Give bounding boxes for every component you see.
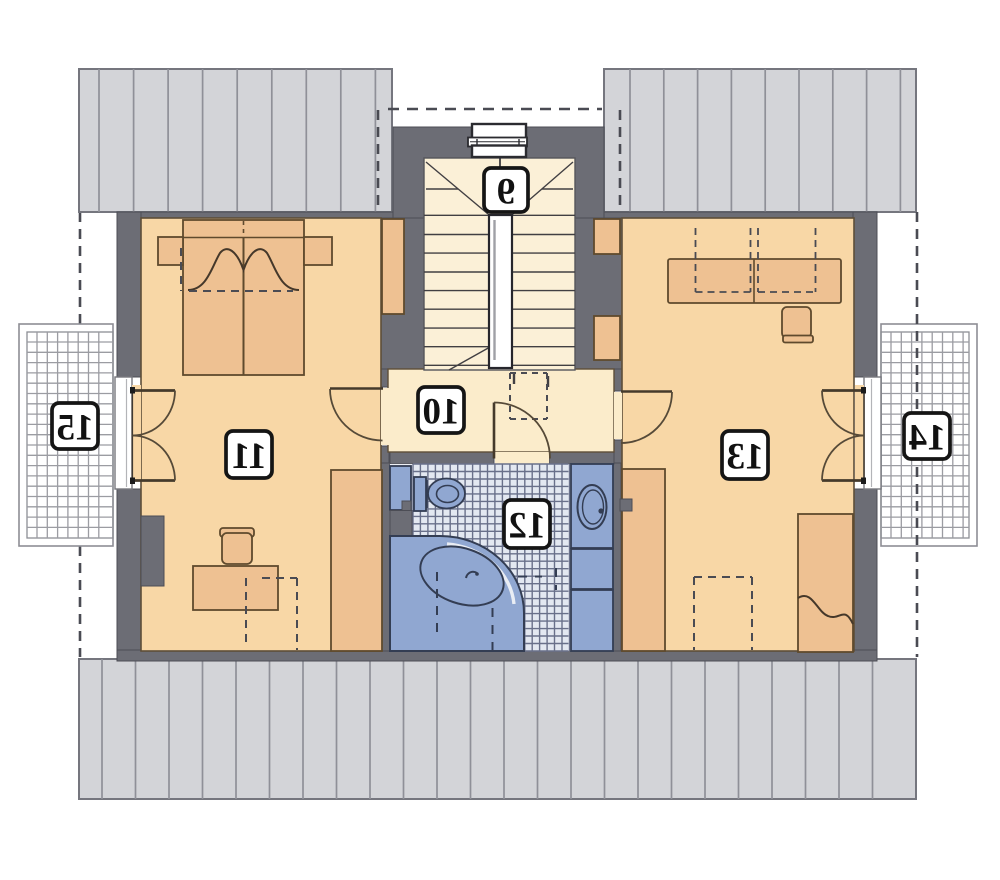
- svg-text:10: 10: [423, 391, 460, 432]
- svg-text:11: 11: [232, 436, 267, 477]
- svg-text:12: 12: [509, 505, 546, 546]
- svg-text:13: 13: [727, 436, 764, 477]
- svg-text:15: 15: [57, 407, 94, 448]
- svg-text:14: 14: [909, 417, 946, 458]
- svg-text:9: 9: [497, 171, 516, 212]
